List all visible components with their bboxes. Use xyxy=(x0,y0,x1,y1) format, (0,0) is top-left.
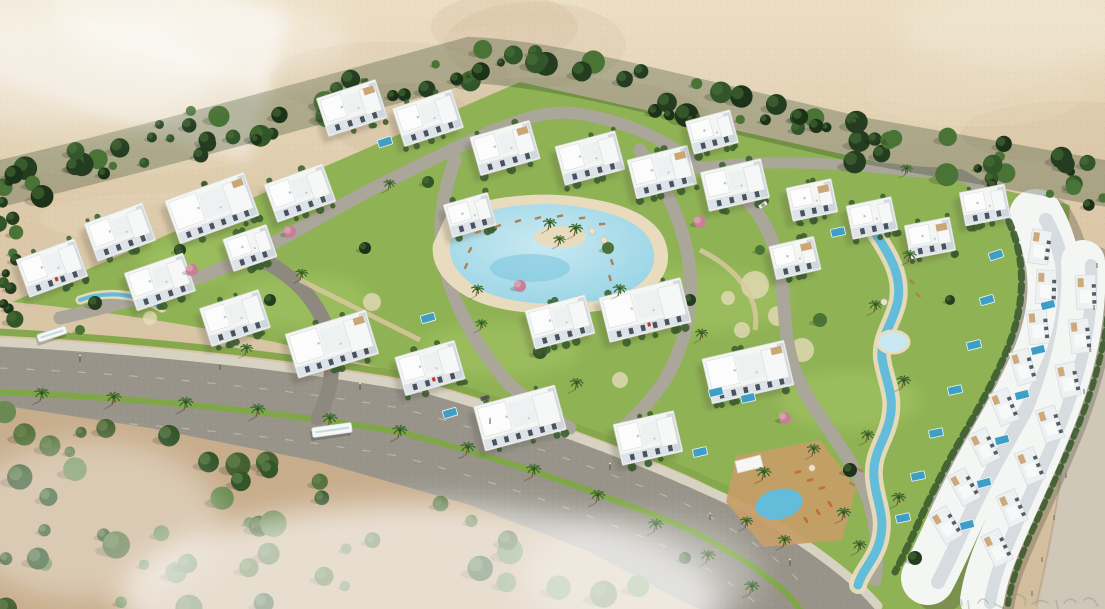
umbrella xyxy=(881,299,887,305)
umbrella xyxy=(809,465,815,471)
sand-garden-circle xyxy=(721,291,735,305)
sun-lounger xyxy=(599,223,606,226)
townhouse-unit xyxy=(1035,270,1056,305)
townhouse-unit xyxy=(1075,275,1096,310)
umbrella xyxy=(601,237,607,243)
sand-garden-circle xyxy=(734,322,750,338)
umbrella xyxy=(589,228,595,234)
round-pool xyxy=(877,331,909,353)
townhouse-unit xyxy=(1068,318,1091,354)
sand-garden-circle xyxy=(612,372,628,388)
sand-garden-circle xyxy=(363,293,381,311)
townhouse-unit xyxy=(1026,309,1049,345)
townhouse-unit xyxy=(1028,229,1053,265)
aerial-render xyxy=(0,0,1105,609)
